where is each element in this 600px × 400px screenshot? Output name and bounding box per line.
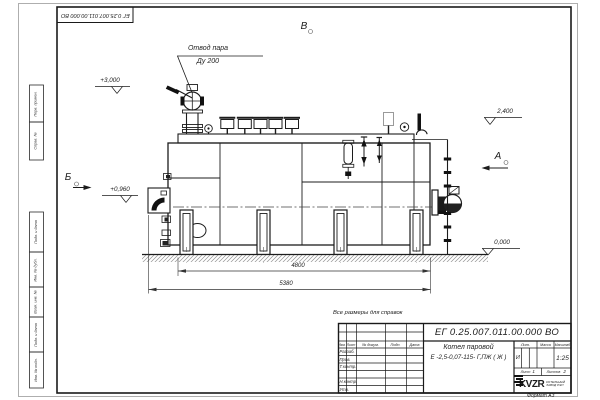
- callout-steam-outlet: Отвод пара: [176, 45, 240, 52]
- lifting-hook: [416, 130, 427, 135]
- logo-subtext: КОТЕЛЬНЫЙ ЗАВОД РЭП: [546, 381, 565, 388]
- view-label-b: Б: [62, 173, 74, 183]
- view-arrows: [73, 30, 508, 191]
- margin-stamp-podl: Инв. № подл.: [29, 352, 43, 388]
- corner-designation: ЕГ 0.25.007.011.00.000 ВО: [61, 12, 130, 18]
- burner: [432, 187, 462, 216]
- format-note: Формат А3: [527, 394, 554, 399]
- ground-line: [142, 255, 488, 263]
- col-header-doc: № докум.: [356, 341, 385, 348]
- row-razrab: Разраб.: [338, 348, 358, 356]
- elevation-3000: +3,000: [93, 78, 127, 84]
- sheets-value: 2: [563, 369, 566, 374]
- col-header-list: Лист: [346, 341, 356, 348]
- row-prov: Пров.: [338, 356, 358, 364]
- sheets-label: Листов: [547, 370, 561, 374]
- corner-designation-box: ЕГ 0.25.007.011.00.000 ВО: [57, 7, 133, 22]
- lit-value: И: [514, 348, 522, 368]
- view-label-a: А: [492, 152, 504, 162]
- steam-outlet-valve: [166, 85, 204, 135]
- scale-value: 1:25: [554, 348, 571, 368]
- view-label-v: В: [298, 22, 310, 32]
- margin-stamp-podp2: Подп. и дата: [29, 317, 43, 352]
- elevation-0000: 0,000: [487, 240, 517, 246]
- mass-header: Масса: [537, 341, 554, 348]
- top-fittings: [205, 113, 427, 136]
- col-header-izm: Изм.: [338, 341, 346, 348]
- dimension-4800: 4800: [284, 263, 312, 269]
- margin-stamp-sprav: Справ. №: [29, 122, 43, 160]
- product-name: Котел паровой: [423, 342, 514, 352]
- kvzr-bars-icon: [514, 375, 523, 386]
- company-logo: KVZR КОТЕЛЬНЫЙ ЗАВОД РЭП: [514, 375, 570, 393]
- margin-stamp-perv: Перв. примен.: [29, 85, 43, 122]
- row-tkontr: Т.контр.: [338, 363, 358, 371]
- col-header-data: Дата: [406, 341, 423, 348]
- col-header-podp: Подп.: [385, 341, 406, 348]
- scale-header: Масштаб: [554, 341, 571, 348]
- row-utv: Утв.: [338, 386, 358, 394]
- margin-stamp-vzam: Взам. инв. №: [29, 287, 43, 317]
- safety-valves: [219, 118, 300, 134]
- elevation-0960: +0,960: [102, 187, 138, 193]
- reference-note: Все размеры для справок: [333, 311, 402, 317]
- sheet-label: Лист: [521, 370, 531, 374]
- margin-stamp-dubl: Инв. № дубл.: [29, 252, 43, 287]
- row-nkontr: Н.контр.: [338, 378, 358, 386]
- margin-stamp-podp1: Подп. и дата: [29, 212, 43, 252]
- dimension-5380: 5380: [272, 281, 300, 287]
- sheet-value: 1: [532, 369, 535, 374]
- furnace-box: [148, 188, 170, 213]
- product-model: Е -2,5-0,07-115- Г,ПЖ ( Ж ): [423, 352, 514, 362]
- elevation-2400: 2,400: [490, 109, 520, 115]
- callout-dn200: Ду 200: [176, 58, 240, 65]
- drawing-sheet: ЕГ 0.25.007.011.00.000 ВО Перв. примен. …: [0, 0, 600, 400]
- boiler-body: [155, 134, 440, 245]
- lit-header: Лит.: [514, 341, 537, 348]
- elevation-marks: [95, 87, 522, 256]
- title-designation: ЕГ 0.25.007.011.00.000 ВО: [423, 323, 571, 341]
